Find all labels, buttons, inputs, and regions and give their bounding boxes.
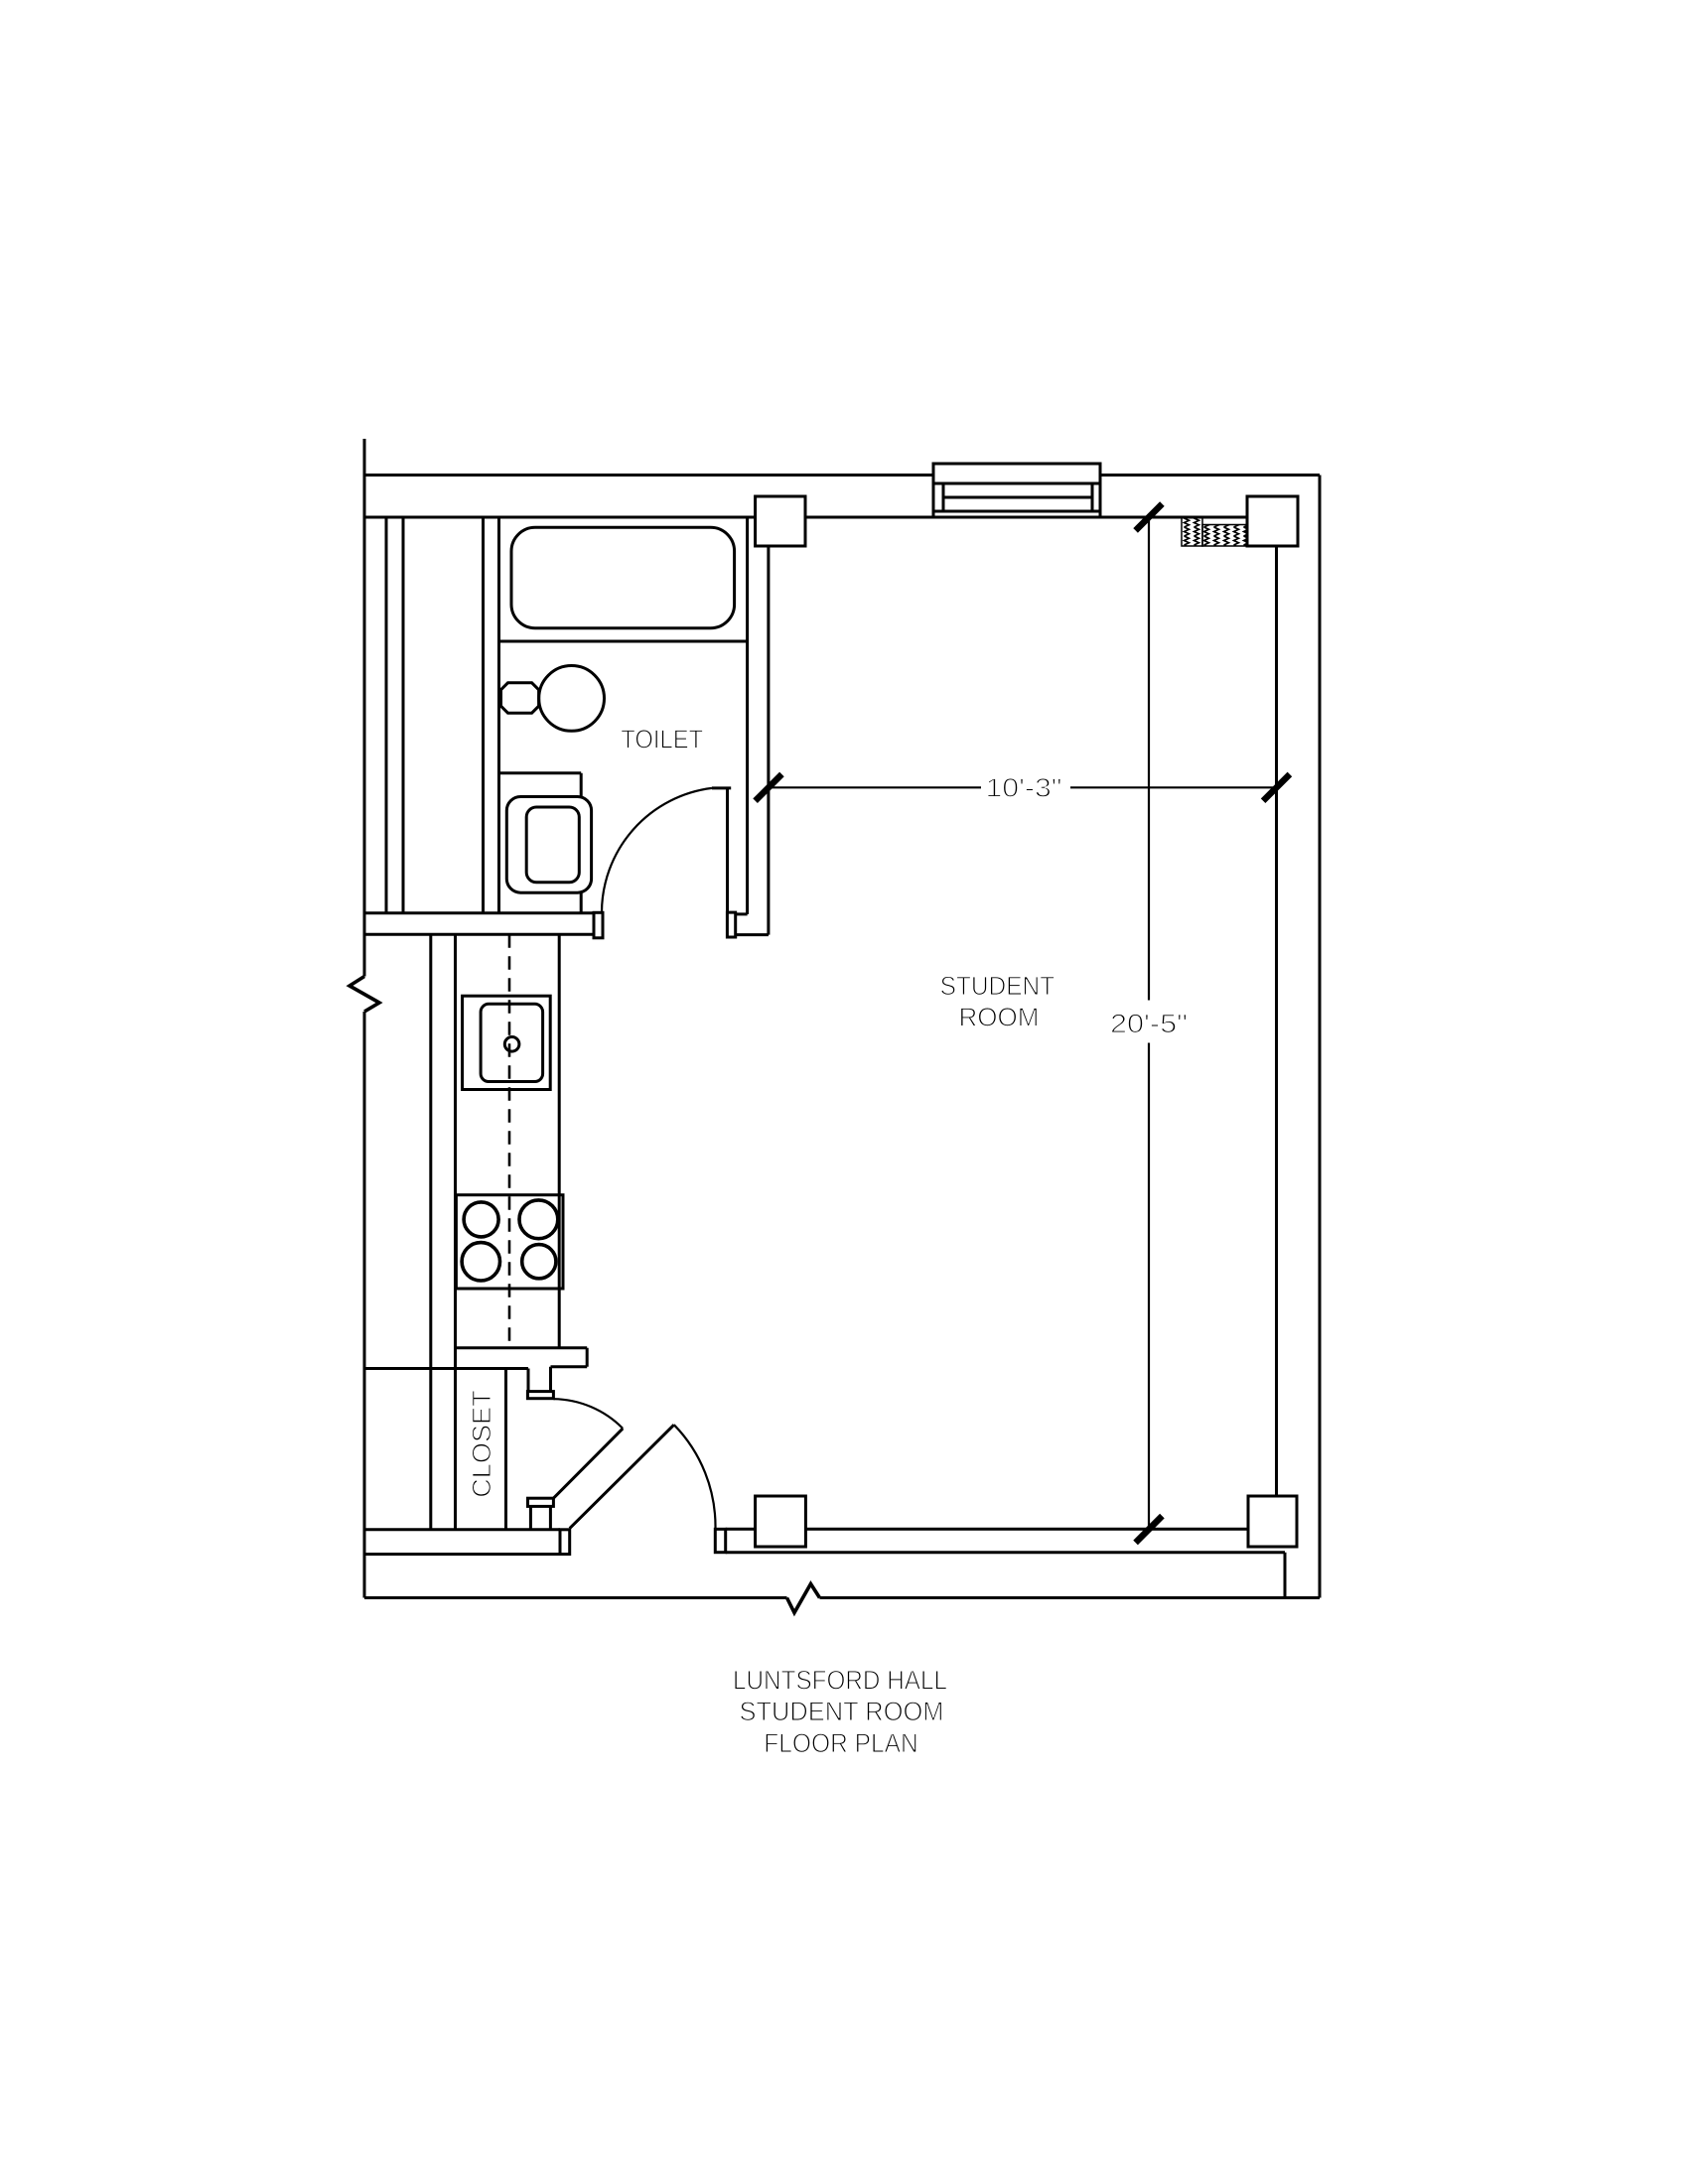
svg-text:LUNTSFORD HALL: LUNTSFORD HALL [733, 1666, 947, 1696]
svg-text:TOILET: TOILET [621, 725, 703, 754]
svg-text:STUDENT: STUDENT [940, 971, 1055, 1001]
svg-text:ROOM: ROOM [959, 1003, 1040, 1032]
svg-text:CLOSET: CLOSET [467, 1390, 496, 1498]
svg-text:10'-3": 10'-3" [986, 773, 1062, 803]
svg-text:20'-5": 20'-5" [1110, 1009, 1188, 1038]
svg-text:FLOOR PLAN: FLOOR PLAN [764, 1728, 918, 1758]
svg-text:STUDENT ROOM: STUDENT ROOM [740, 1697, 944, 1726]
